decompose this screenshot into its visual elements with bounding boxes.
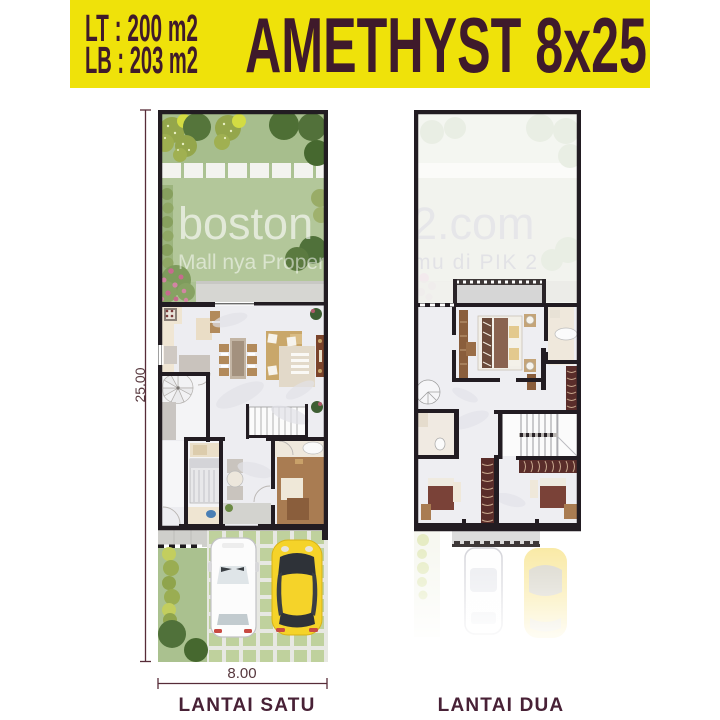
svg-text:LB : 203 m2: LB : 203 m2 bbox=[85, 40, 198, 82]
svg-text:8.00: 8.00 bbox=[227, 665, 256, 682]
svg-text:2.com: 2.com bbox=[412, 198, 535, 249]
svg-text:AMETHYST 8x25: AMETHYST 8x25 bbox=[245, 1, 647, 89]
svg-text:LANTAI SATU: LANTAI SATU bbox=[178, 695, 315, 716]
svg-text:Mall nya Properti: Mall nya Properti bbox=[178, 251, 336, 274]
svg-text:25.00: 25.00 bbox=[132, 367, 148, 402]
svg-text:boston: boston bbox=[178, 198, 313, 249]
svg-text:LANTAI DUA: LANTAI DUA bbox=[438, 695, 565, 716]
svg-text:mu di PIK 2: mu di PIK 2 bbox=[413, 251, 537, 274]
